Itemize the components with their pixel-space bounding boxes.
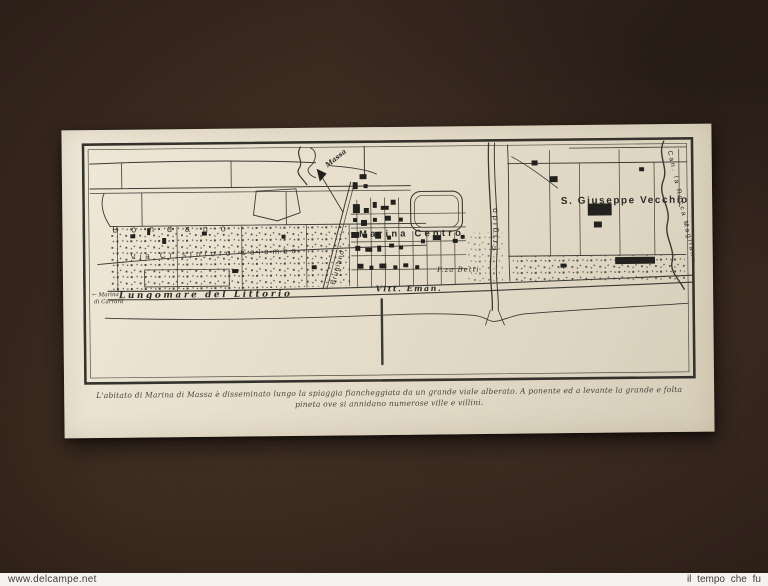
place-label-piazza-betti: P.za Betti: [436, 265, 480, 273]
road-label-lungomare-littorio: Lungomare del Littorio: [118, 289, 293, 301]
watermark-bar: www.delcampe.net il tempo che fu: [0, 573, 768, 586]
direction-label-marina-carrara-1: ← Marina: [92, 292, 119, 298]
watermark-il-tempo-che-fu: il tempo che fu: [687, 574, 761, 585]
place-label-s-giuseppe-vecchio: S. Giuseppe Vecchio: [561, 195, 689, 207]
place-label-marina-centro: Marina Centro: [359, 228, 464, 240]
watermark-delcampe: www.delcampe.net: [8, 574, 97, 585]
place-label-bondano: Bondano: [112, 223, 238, 234]
map-engraving: Bondano Via Cristoforo Colombo Marina Ce…: [82, 137, 697, 385]
river-label-frigido: Frigido: [490, 205, 499, 250]
north-arrowhead: [317, 169, 327, 182]
road-label-vitt-eman: Vitt. Eman.: [376, 284, 443, 294]
map-print: Bondano Via Cristoforo Colombo Marina Ce…: [61, 124, 714, 439]
photo-background: Bondano Via Cristoforo Colombo Marina Ce…: [0, 0, 768, 586]
map-caption: L'abitato di Marina di Massa è dissemina…: [74, 385, 704, 413]
direction-label-marina-carrara-2: di Carrara: [94, 299, 123, 305]
